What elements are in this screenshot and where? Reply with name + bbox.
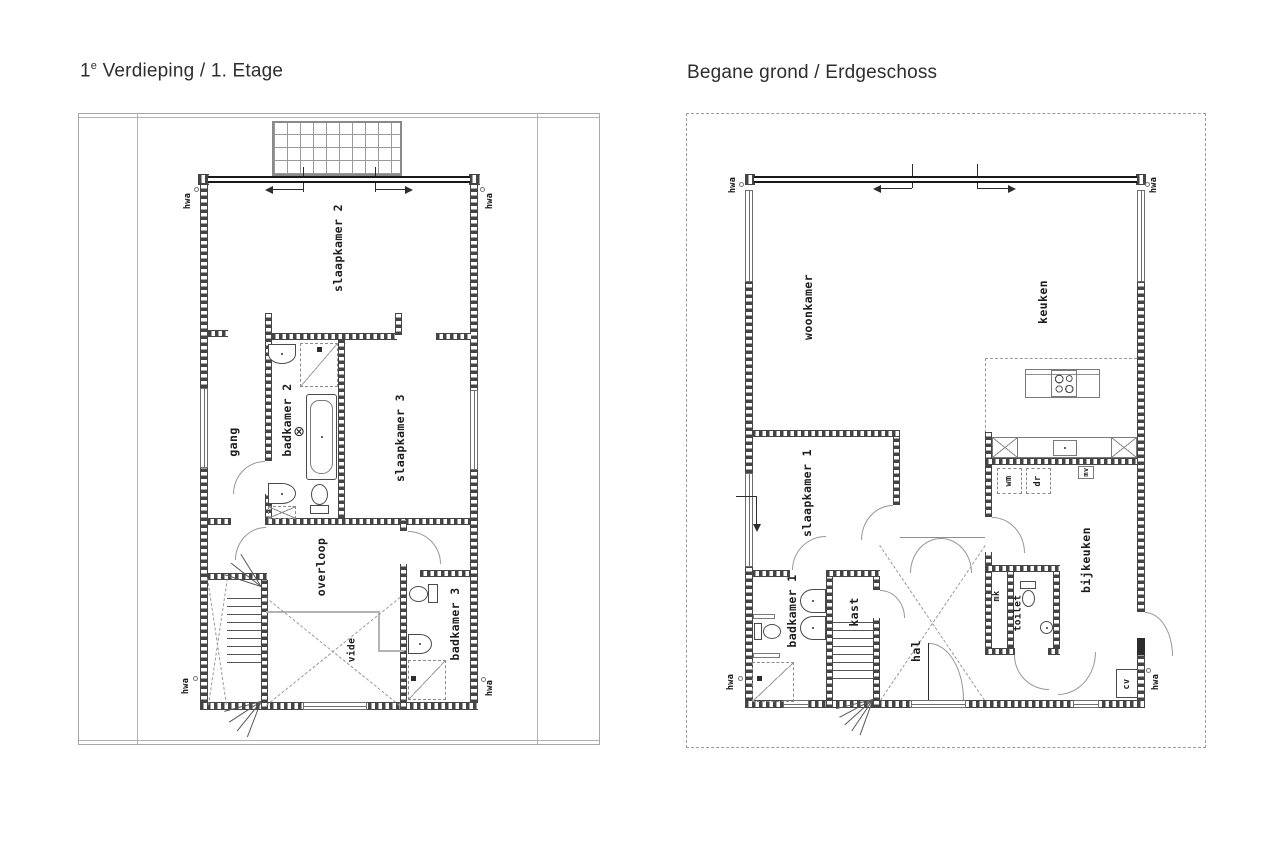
side-door-leaf [1137,638,1145,656]
wall-mk-toilet-top [985,565,1060,572]
shower-head-icon [317,347,322,352]
front-door-sill [911,700,966,708]
title-rest: Verdieping / 1. Etage [97,60,283,81]
exterior-wall-left [745,282,753,473]
cv-label: cv [1122,678,1132,689]
slider-arrow-left-line [271,189,303,190]
wall-gang-stub [208,330,228,337]
room-label-woonkamer: woonkamer [801,274,815,340]
hwa-label: hwa [1151,674,1161,690]
room-label-slaapkamer1: slaapkamer 1 [800,449,814,537]
hwa-label: hwa [183,193,193,209]
room-label-toilet: toilet [1013,595,1024,632]
slider-arrow-left-head [873,185,881,193]
wall-hal-bijkeuken [985,432,992,517]
slider-arrow-right-line [977,188,1010,189]
washbasin-icon [408,634,432,654]
shower-icon [752,662,794,702]
wall-toilet-bottom [985,648,1015,655]
window-bottom [303,702,367,710]
shelf [753,614,775,619]
staircase [227,598,261,668]
wall-slaapkamer1-top [752,430,900,437]
hwa-pipe-icon [738,676,743,681]
keuken-zone-dashed [985,358,986,433]
glass-facade-wall [754,176,1137,183]
wall-vide-badkamer3 [400,520,407,531]
wall-keuken-bijkeuken [985,458,1137,465]
hwa-pipe-icon [194,187,199,192]
frame-inner-bottom-line [79,740,599,741]
toilet-tank [754,623,762,640]
light-point-symbol: ⊗ [293,424,305,440]
room-label-vide: vide [347,638,358,662]
wall-slaapkamer1-right [893,437,900,505]
washbasin-icon [268,344,296,364]
vide-rim [378,650,404,652]
toilet-icon [311,484,328,505]
ground-floor-plan: Begane grond / Erdgeschoss hwa hwa hwa h… [640,0,1280,853]
room-label-slaapkamer3: slaapkamer 3 [393,394,407,482]
washbasin-icon [800,616,826,640]
shower-head-icon [411,676,416,681]
exterior-wall-right [1137,282,1145,612]
frame-inner-top-line [79,117,599,118]
room-label-gang: gang [226,427,240,456]
wall-overloop-top [265,518,471,525]
bathtub-inner [310,400,333,474]
room-label-overloop: overloop [314,538,328,597]
room-label-keuken: keuken [1036,280,1050,324]
washbasin-icon [268,483,296,504]
room-label-badkamer3: badkamer 3 [448,587,462,660]
slider-arrow-right-head [1008,185,1016,193]
wall-slaapkamer3-top [436,333,471,340]
title-prefix: 1 [80,60,91,81]
wall-stub-vertical [395,313,402,335]
wall-kast-right [873,618,880,708]
toilet-tank [310,505,329,514]
washer-label: wm [1004,475,1014,486]
slider-arrow-right-head [405,186,413,194]
hwa-label: hwa [1149,177,1159,193]
hwa-pipe-icon [193,676,198,681]
window-right-top [1137,190,1145,282]
slider-arrow-left-line [879,188,912,189]
dryer-label: dr [1033,475,1043,486]
roof-trellis [272,121,402,176]
room-label-badkamer1: badkamer 1 [785,574,799,647]
window-bottom-right [1073,700,1099,708]
window-swing-line [736,496,757,497]
hwa-label: hwa [726,674,736,690]
sink-icon [1053,440,1077,456]
shower-tray-icon [268,506,296,519]
hwa-pipe-icon [480,187,485,192]
hwa-label: hwa [181,678,191,694]
toilet-tank [1020,581,1036,589]
room-label-hal: hal [909,640,923,662]
wall-kast-top [826,570,880,577]
hwa-pipe-icon [1145,182,1150,187]
first-floor-title: 1e Verdieping / 1. Etage [80,60,283,82]
wall-badkamer3-top [420,570,471,577]
toilet-icon [409,586,428,602]
window-left-top [745,190,753,282]
wall-slaapkamer2-bottom [265,333,397,340]
washbasin-icon [800,589,826,613]
hwa-pipe-icon [739,182,744,187]
slider-arrow-left-head [265,186,273,194]
hand-basin-icon [1040,621,1053,634]
first-floor-plan: 1e Verdieping / 1. Etage hwa hwa hwa hwa [0,0,640,853]
vent-unit-label: mv [1082,467,1090,476]
window-swing-arrow-head [753,524,761,532]
hwa-label: hwa [728,177,738,193]
hwa-pipe-icon [481,677,486,682]
wall-gang-badkamer2 [265,313,272,461]
room-label-bijkeuken: bijkeuken [1079,527,1093,593]
room-label-slaapkamer2: slaapkamer 2 [331,204,345,292]
wall-toilet-right [1053,572,1060,655]
frame-left-division-line [137,114,138,744]
window-slaapkamer1 [745,473,753,567]
hwa-label: hwa [485,680,495,696]
counter-cabinet-icon [992,437,1018,458]
toilet-icon [763,624,781,639]
staircase [833,622,873,680]
slider-arrow-right-line [375,189,407,190]
glass-facade-wall [208,176,470,183]
wall-kast-right [873,577,880,590]
wall-kast-left [826,577,833,708]
keuken-zone-dashed [985,358,1137,359]
room-label-kast: kast [847,597,861,626]
wall-badkamer2-slaapkamer3 [338,340,345,518]
window-right [470,390,478,470]
room-label-badkamer2: badkamer 2 [280,383,294,456]
window-left [200,388,208,468]
hwa-label: hwa [485,193,495,209]
shelf [753,653,780,658]
room-label-mk: mk [992,590,1002,601]
ground-floor-title: Begane grond / Erdgeschoss [687,62,937,84]
window-swing-line [756,496,757,525]
vide-rim [378,611,380,652]
wall-overloop-top [207,518,231,525]
frame-right-division-line [537,114,538,744]
wall-vide-badkamer3 [400,564,407,710]
toilet-tank [428,584,438,603]
hwa-pipe-icon [1146,668,1151,673]
shower-head-icon [757,676,762,681]
counter-cabinet-icon [1111,437,1137,458]
cooktop-icon [1051,370,1077,397]
toilet-icon [1022,590,1035,607]
